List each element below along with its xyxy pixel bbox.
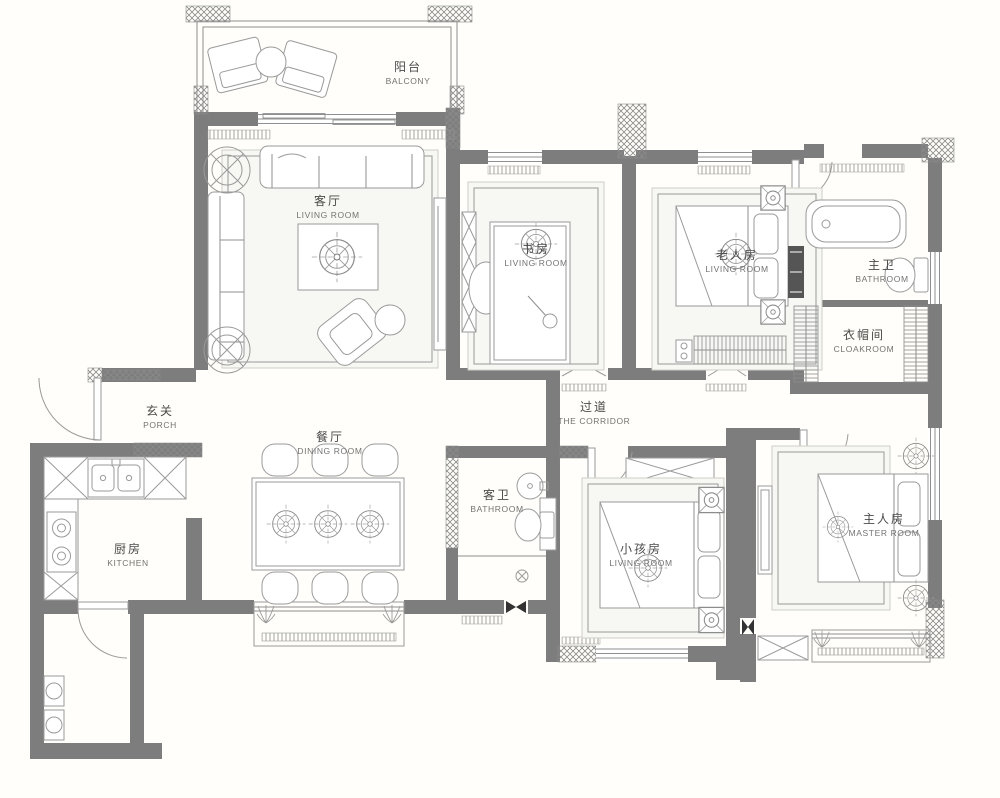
study-window [488,150,542,164]
dining-chairs-bottom [262,572,398,604]
master-left-door-leaf [742,619,754,635]
dining-furniture [252,444,404,604]
room-label-master-bathroom: 主卫 BATHROOM [855,256,908,284]
corridor-label-zh: 过道 [558,398,631,415]
room-label-elderly-room: 老人房 LIVING ROOM [705,246,768,274]
room-label-balcony: 阳台 BALCONY [386,58,431,86]
room-label-kitchen: 厨房 KITCHEN [107,540,149,568]
utility-door [78,602,128,658]
room-label-study: 书房 LIVING ROOM [504,240,567,268]
kitchen-label-en: KITCHEN [107,558,149,568]
plant-icon [257,605,275,623]
ac-unit-icon [699,487,724,512]
elderly-window [698,150,752,164]
room-label-master-room: 主人房 MASTER ROOM [849,510,920,538]
cloakroom-label-en: CLOAKROOM [834,344,895,354]
study-label-zh: 书房 [504,240,567,257]
room-label-guest-bathroom: 客卫 BATHROOM [470,486,523,514]
elderly-room-label-en: LIVING ROOM [705,264,768,274]
floor-plan-canvas: 阳台 BALCONY 客厅 LIVING ROOM 书房 LIVING ROOM… [0,0,1000,798]
study-furniture [462,182,604,370]
bathtub [806,200,906,248]
room-label-living-room: 客厅 LIVING ROOM [296,192,359,220]
balcony-label-en: BALCONY [386,76,431,86]
plant-icon [911,631,927,647]
kids-room-label-zh: 小孩房 [609,540,672,557]
master-cabinet [758,636,808,660]
kids-window [596,646,688,662]
balcony-table [256,47,286,77]
guest-bath-door-leaf [506,601,526,613]
room-label-porch: 玄关 PORCH [143,402,177,430]
right-wall-window-upper [928,252,942,304]
living-room-furniture [204,146,446,373]
tv-cabinet [434,198,446,350]
cloakroom-label-zh: 衣帽间 [834,326,895,343]
balcony-furniture [207,36,338,98]
master-bathroom-label-en: BATHROOM [855,274,908,284]
ac-unit-icon [699,607,724,632]
master-room-label-zh: 主人房 [849,510,920,527]
guest-bathroom-label-en: BATHROOM [470,504,523,514]
guest-bathroom-label-zh: 客卫 [470,486,523,503]
balcony-label-zh: 阳台 [386,58,431,75]
ac-unit-icon [761,300,785,324]
plant-icon [383,605,401,623]
dining-room-label-zh: 餐厅 [297,428,362,445]
living-room-label-en: LIVING ROOM [296,210,359,220]
room-label-cloakroom: 衣帽间 CLOAKROOM [834,326,895,354]
porch-label-zh: 玄关 [143,402,177,419]
master-room-label-en: MASTER ROOM [849,528,920,538]
plant-icon [814,631,830,647]
right-wall-window-lower [928,428,942,520]
room-label-corridor: 过道 THE CORRIDOR [558,398,631,426]
side-table [375,305,405,335]
ac-unit-icon [761,186,785,210]
floor-plan-drawing [0,0,1000,798]
balcony-sliding-door [258,112,396,126]
porch-label-en: PORCH [143,420,177,430]
room-label-dining-room: 餐厅 DINING ROOM [297,428,362,456]
room-label-kids-room: 小孩房 LIVING ROOM [609,540,672,568]
living-room-label-zh: 客厅 [296,192,359,209]
utility-fixtures [44,676,64,740]
kids-room-label-en: LIVING ROOM [609,558,672,568]
master-room-furniture [758,438,934,660]
elderly-room-label-zh: 老人房 [705,246,768,263]
study-label-en: LIVING ROOM [504,258,567,268]
master-wardrobe [758,486,772,574]
dining-bay-window [254,602,404,646]
master-bay-window [812,630,930,662]
kitchen-sink [88,459,144,497]
master-bathroom-label-zh: 主卫 [855,256,908,273]
corridor-label-en: THE CORRIDOR [558,416,631,426]
elderly-wardrobe [676,336,786,364]
kitchen-counter-top [44,457,186,499]
entry-door [39,378,101,440]
kitchen-furniture [44,457,186,740]
kitchen-counter-left [44,499,78,600]
sofa-three-seat [260,146,424,188]
floor-drain [516,570,528,582]
kitchen-label-zh: 厨房 [107,540,149,557]
vanity-sink [788,246,804,298]
dining-room-label-en: DINING ROOM [297,446,362,456]
